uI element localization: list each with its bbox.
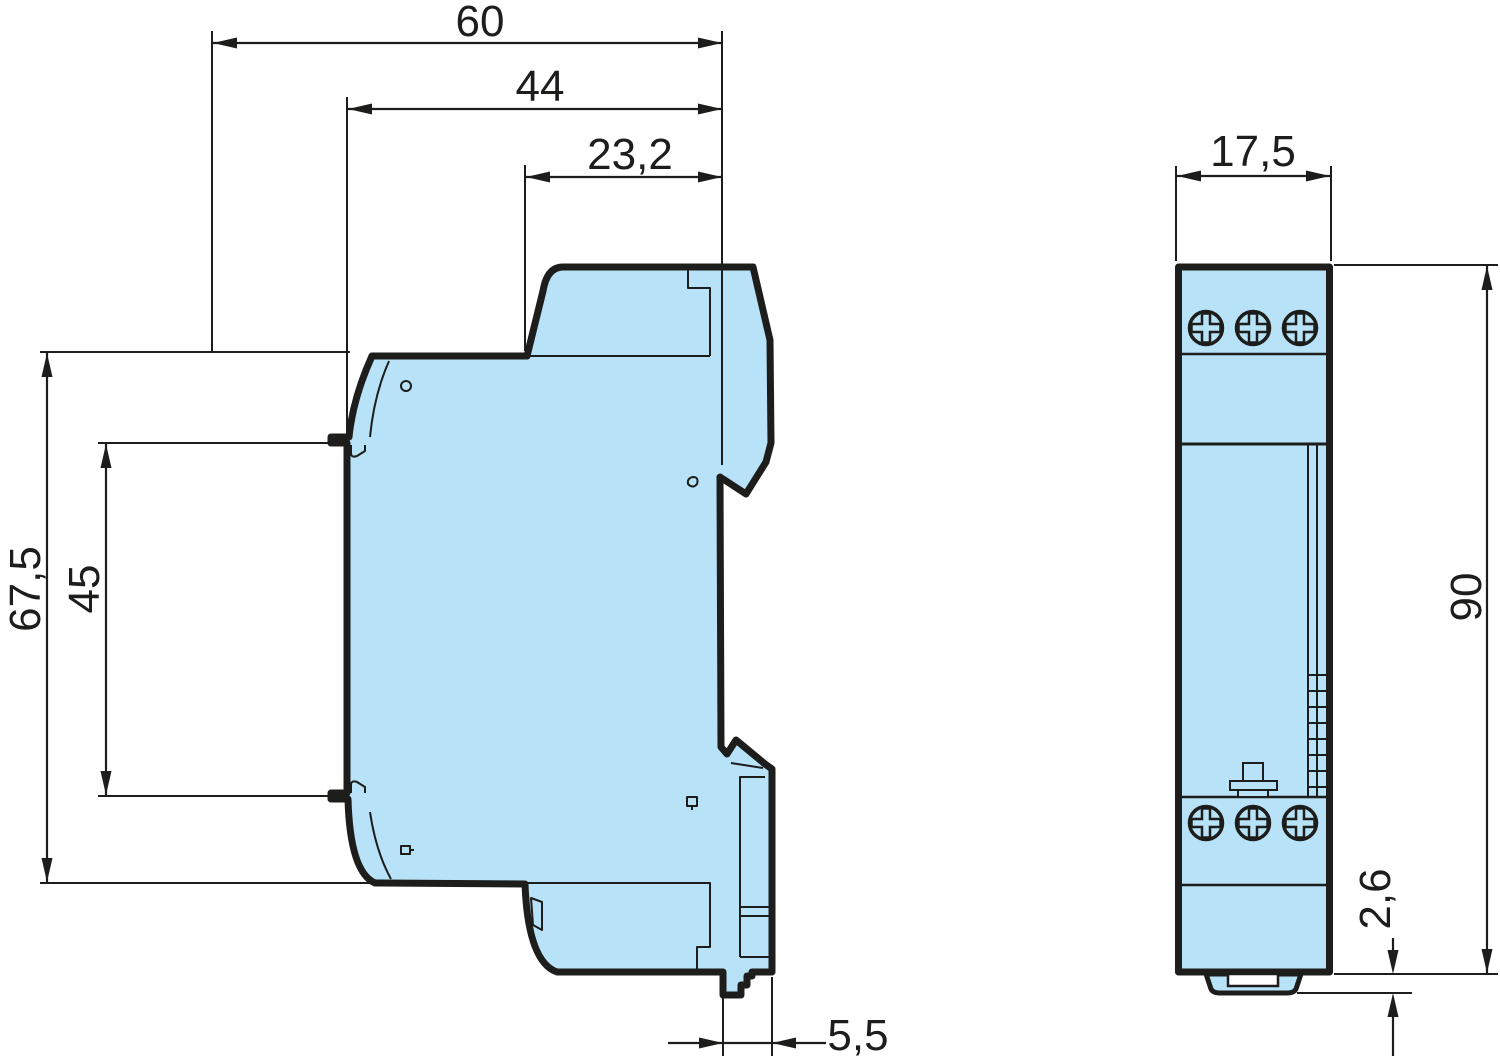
dimension-label: 2,6 — [1351, 868, 1400, 929]
dimension-label: 67,5 — [1, 546, 50, 632]
dimension-label: 44 — [516, 62, 565, 111]
screw-icon — [1237, 312, 1270, 345]
front-view: 17,5 90 2,6 — [1176, 127, 1498, 1056]
dim-height: 90 — [1334, 265, 1498, 974]
dimension-label: 23,2 — [587, 130, 673, 179]
arrow-right-icon — [698, 104, 722, 115]
arrow-up-icon — [42, 353, 53, 377]
screw-icon — [1190, 807, 1223, 840]
dim-rear-clip-depth: 5,5 — [668, 977, 889, 1057]
screw-icon — [1284, 312, 1317, 345]
arrow-up-icon — [1388, 993, 1399, 1017]
screw-icon — [1237, 807, 1270, 840]
screw-icon — [1190, 312, 1223, 345]
arrow-right-icon — [698, 38, 722, 49]
dimension-label: 45 — [60, 565, 109, 614]
arrow-left-icon — [526, 172, 550, 183]
arrow-up-icon — [101, 444, 112, 468]
dimension-label: 90 — [1442, 573, 1491, 622]
arrow-down-icon — [1388, 950, 1399, 974]
arrow-left-icon — [213, 38, 237, 49]
dimension-label: 60 — [456, 0, 505, 46]
arrow-left-icon — [348, 104, 372, 115]
drawing-canvas: 60 44 23,2 67,5 — [0, 0, 1500, 1057]
arrow-right-icon — [698, 172, 722, 183]
dimension-label: 5,5 — [827, 1011, 888, 1057]
arrow-left-icon — [772, 1038, 796, 1049]
dim-front-height: 67,5 — [1, 352, 378, 883]
arrow-right-icon — [699, 1038, 723, 1049]
dim-width: 17,5 — [1176, 127, 1331, 261]
dim-face-height: 45 — [60, 443, 345, 796]
arrow-down-icon — [42, 858, 53, 882]
front-view-outline — [1179, 267, 1330, 972]
arrow-left-icon — [1177, 171, 1201, 182]
arrow-down-icon — [101, 771, 112, 795]
arrow-up-icon — [1482, 266, 1493, 290]
dimension-label: 17,5 — [1210, 127, 1296, 176]
side-view-outline — [331, 267, 772, 995]
front-screws-top — [1190, 312, 1317, 345]
dimension-drawing: 60 44 23,2 67,5 — [0, 0, 1500, 1057]
front-screws-bottom — [1190, 807, 1317, 840]
arrow-right-icon — [1306, 171, 1330, 182]
arrow-down-icon — [1482, 949, 1493, 973]
front-foot-slot — [1228, 974, 1278, 986]
screw-icon — [1284, 807, 1317, 840]
side-view: 60 44 23,2 67,5 — [1, 0, 889, 1057]
